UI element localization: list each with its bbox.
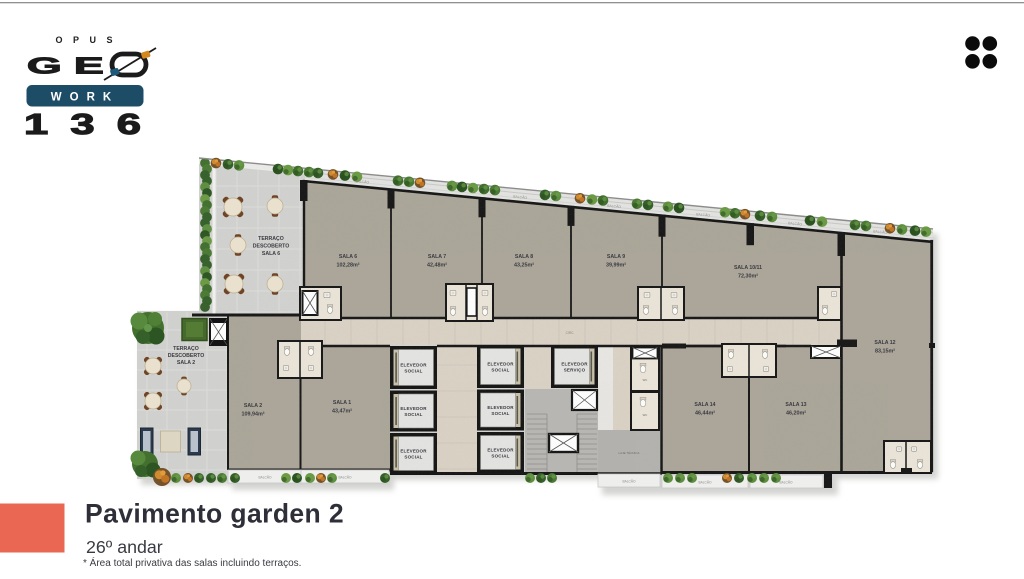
svg-text:BALCÃO: BALCÃO (259, 475, 272, 480)
svg-text:BALCÃO: BALCÃO (339, 475, 352, 480)
svg-text:43,47m²: 43,47m² (332, 409, 352, 415)
svg-text:SALA 6: SALA 6 (339, 254, 357, 260)
svg-text:109,94m²: 109,94m² (241, 412, 264, 418)
svg-text:SALA 8: SALA 8 (515, 254, 533, 260)
svg-text:72,30m²: 72,30m² (738, 274, 758, 280)
svg-text:39,99m²: 39,99m² (606, 263, 626, 269)
svg-text:SALA 13: SALA 13 (785, 402, 806, 408)
svg-text:SALA 6: SALA 6 (262, 251, 280, 257)
svg-text:OPUS: OPUS (56, 35, 124, 45)
svg-text:DESCOBERTO: DESCOBERTO (168, 353, 205, 359)
svg-text:SALA 1: SALA 1 (333, 400, 351, 406)
svg-text:GE: GE (27, 53, 116, 79)
svg-text:26º andar: 26º andar (86, 537, 163, 557)
svg-text:BALCÃO: BALCÃO (623, 479, 636, 484)
svg-text:SALA 7: SALA 7 (428, 254, 446, 260)
svg-text:136: 136 (24, 108, 163, 140)
svg-text:TERRAÇO: TERRAÇO (173, 346, 199, 352)
svg-text:* Área total privativa das sal: * Área total privativa das salas incluin… (83, 556, 301, 569)
svg-text:BALCÃO: BALCÃO (699, 480, 712, 485)
svg-text:SALA 2: SALA 2 (244, 403, 262, 409)
svg-text:BALCÃO: BALCÃO (780, 480, 793, 485)
svg-text:43,25m²: 43,25m² (514, 263, 534, 269)
svg-text:SALA 14: SALA 14 (694, 402, 715, 408)
svg-text:SALA 12: SALA 12 (874, 340, 895, 346)
svg-text:DESCOBERTO: DESCOBERTO (253, 244, 290, 250)
svg-text:TERRAÇO: TERRAÇO (258, 236, 284, 242)
svg-text:SALA 2: SALA 2 (177, 360, 195, 366)
svg-text:83,15m²: 83,15m² (875, 349, 895, 355)
svg-text:SALA 10/11: SALA 10/11 (734, 265, 762, 271)
svg-text:SALA 9: SALA 9 (607, 254, 625, 260)
svg-text:46,20m²: 46,20m² (786, 411, 806, 417)
svg-text:WORK: WORK (51, 92, 119, 104)
svg-text:46,44m²: 46,44m² (695, 411, 715, 417)
svg-text:Pavimento garden 2: Pavimento garden 2 (85, 499, 344, 529)
svg-text:42,48m²: 42,48m² (427, 263, 447, 269)
svg-text:102,28m²: 102,28m² (336, 263, 359, 269)
